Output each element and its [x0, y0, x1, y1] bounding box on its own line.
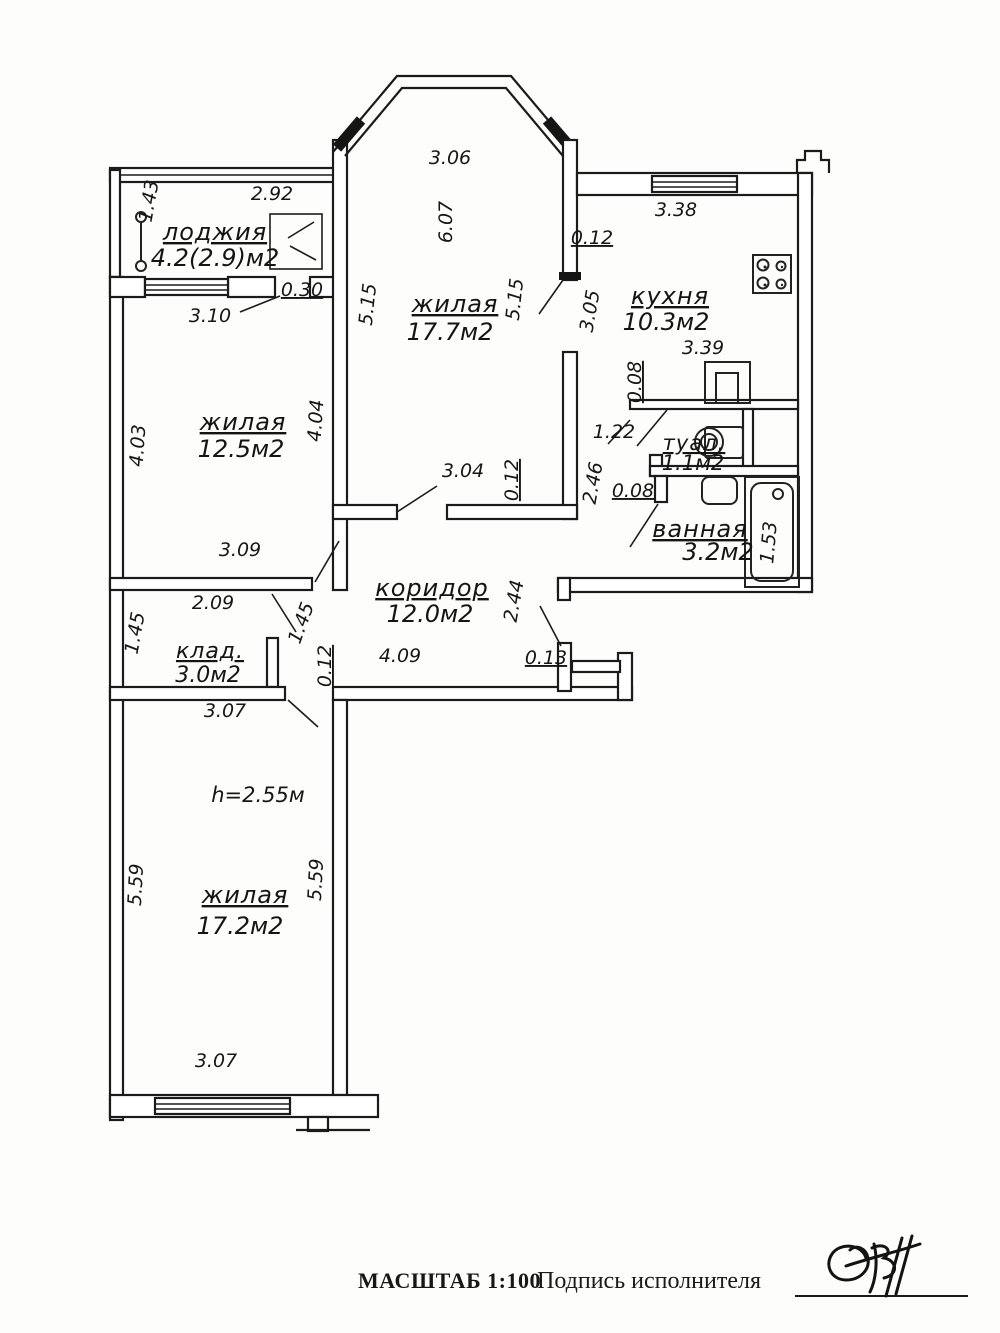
room-area-living-bottom: 17.2м2	[197, 912, 284, 940]
dim-bathtub-len: 1.53	[756, 520, 782, 564]
washbasin-icon	[702, 477, 737, 504]
dim-kitchen-top: 3.38	[655, 199, 697, 221]
ceiling-height-note: h=2.55м	[211, 783, 305, 807]
room-area-kitchen: 10.3м2	[623, 308, 710, 336]
dim-kitchen-width: 3.39	[682, 337, 724, 359]
room-area-living-top: 17.7м2	[407, 318, 494, 346]
room-area-toilet: 1.1м2	[662, 451, 725, 475]
dim-storage-right: 1.45	[284, 599, 319, 646]
dim-bath-height: 2.46	[579, 460, 608, 505]
dim-room3-bottom: 3.07	[195, 1050, 237, 1072]
dim-room3-left: 5.59	[124, 863, 148, 906]
signature-caption: Подпись исполнителя	[537, 1268, 761, 1294]
dim-room1-door: 3.04	[442, 460, 484, 482]
dim-corridor-len: 4.09	[379, 645, 421, 667]
room-area-corridor: 12.0м2	[387, 600, 474, 628]
dim-storage-top: 2.09	[192, 592, 234, 614]
room-area-loggia: 4.2(2.9)м2	[151, 244, 279, 272]
entry-door-slab	[572, 661, 620, 672]
dim-room1-left: 5.15	[355, 282, 381, 326]
dim-room1-height: 6.07	[435, 201, 457, 243]
room-label-living-top: жилая	[411, 290, 499, 318]
dim-toilet-entry: 1.22	[593, 421, 635, 443]
dim-entry-stub: 0.13	[525, 647, 567, 669]
dim-room2-right: 4.04	[304, 399, 329, 443]
room-label-living-left: жилая	[199, 408, 287, 436]
room-label-storage: клад.	[176, 639, 244, 664]
dim-room1-right: 5.15	[502, 277, 528, 321]
dim-storage-bottom: 3.07	[204, 700, 246, 722]
room-label-kitchen: кухня	[631, 282, 709, 310]
room-area-bath: 3.2м2	[682, 538, 754, 566]
dim-room1-wall: 0.12	[501, 459, 523, 501]
room-label-corridor: коридор	[375, 574, 489, 602]
dim-room2-bottom: 3.09	[219, 539, 261, 561]
dim-corridor-height: 2.44	[500, 578, 529, 623]
floor-plan-drawing: лоджия 4.2(2.9)м2 жилая 17.7м2 кухня 10.…	[0, 0, 1000, 1333]
scale-label: МАСШТАБ 1:100	[358, 1268, 541, 1293]
dim-room2-top: 3.10	[189, 305, 231, 327]
kitchen-sink-icon	[705, 362, 750, 403]
room-label-loggia: лоджия	[162, 218, 267, 246]
dim-kitchen-left: 3.05	[576, 288, 605, 333]
dim-balcony-door: 0.30	[281, 279, 323, 301]
floor-plan-scan: лоджия 4.2(2.9)м2 жилая 17.7м2 кухня 10.…	[0, 0, 1000, 1333]
dim-kitchen-partition: 0.08	[624, 361, 646, 403]
dim-loggia-width: 2.92	[251, 183, 293, 205]
dim-room3-right: 5.59	[304, 858, 328, 901]
dim-kitchen-wall: 0.12	[571, 227, 613, 249]
dim-room2-left: 4.03	[126, 424, 151, 468]
signature	[829, 1236, 920, 1296]
window-kitchen	[652, 176, 737, 192]
room-label-living-bottom: жилая	[201, 881, 289, 909]
dim-loggia-depth: 1.43	[135, 178, 164, 223]
dim-storage-left: 1.45	[121, 610, 150, 655]
window-room3	[155, 1098, 290, 1114]
room-area-living-left: 12.5м2	[198, 435, 285, 463]
window-room2	[145, 279, 228, 295]
stove-icon	[753, 255, 791, 293]
dim-bath-wall: 0.08	[612, 480, 654, 502]
room-area-storage: 3.0м2	[175, 663, 241, 688]
dim-corridor-wall: 0.12	[314, 645, 336, 687]
dim-room1-top: 3.06	[429, 147, 471, 169]
